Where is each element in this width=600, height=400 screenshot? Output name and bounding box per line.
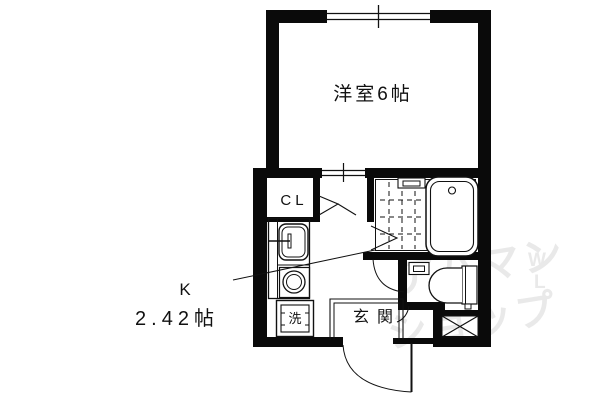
stove-burner-inner xyxy=(287,275,302,290)
wall-left-upper xyxy=(266,10,279,178)
western-room-label: 洋室6帖 xyxy=(333,83,413,105)
kitchen-unit xyxy=(269,219,310,299)
toilet-tank-icon xyxy=(462,266,477,304)
bath-floor-tiles xyxy=(380,182,424,249)
bathroom xyxy=(371,177,478,256)
floorplan-drawing: アパマン ショップ W L xyxy=(0,0,600,400)
wall-bath-left-upper xyxy=(367,177,374,222)
closet-label: CL xyxy=(280,192,307,209)
bathtub-icon xyxy=(426,177,478,256)
washer-label: 洗 xyxy=(288,311,301,326)
kitchen-label: K xyxy=(179,280,192,299)
toilet-shelf-icon xyxy=(409,263,429,275)
entrance-label: 玄関 xyxy=(353,308,401,326)
wall-closet-right xyxy=(313,178,320,222)
closet-door-chevron xyxy=(319,196,338,215)
wall-toilet-left xyxy=(398,258,407,302)
wall-right xyxy=(478,10,491,347)
wall-left-lower xyxy=(253,168,267,347)
bathroom-door-icon xyxy=(371,226,397,250)
tile-lines-vertical xyxy=(389,182,415,249)
wall-shaft-top xyxy=(442,310,478,316)
toilet-bowl-icon xyxy=(429,268,462,303)
watermark-mark-l: L xyxy=(534,272,546,293)
floorplan-canvas: アパマン ショップ W L xyxy=(0,0,600,400)
closet-door-icon xyxy=(319,196,356,215)
watermark-mark-w: W xyxy=(528,250,546,271)
wall-door-stub xyxy=(393,338,403,344)
wall-closet-bottom xyxy=(267,217,320,222)
kitchen-size-label: 2.42帖 xyxy=(135,307,219,330)
closet-door-swing xyxy=(338,204,356,215)
sink-inner xyxy=(282,227,305,257)
toilet-foot xyxy=(465,304,471,309)
wall-bottom-threshold xyxy=(403,338,433,344)
wall-shaft-left xyxy=(433,307,442,347)
